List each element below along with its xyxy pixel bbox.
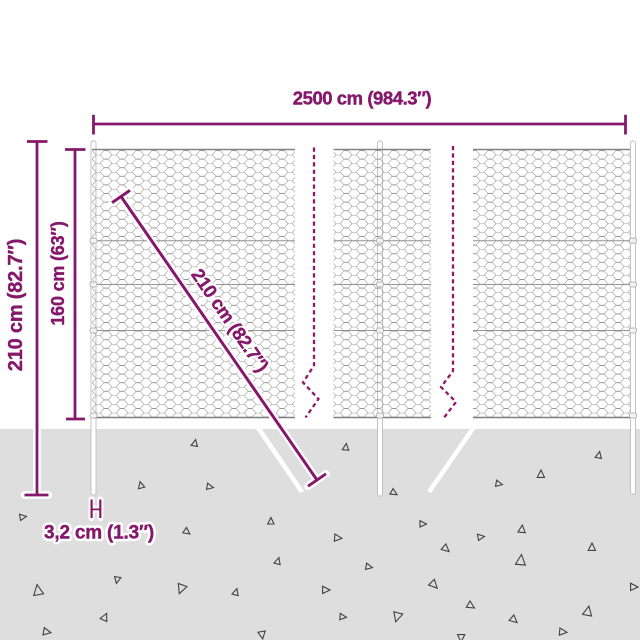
svg-text:3,2 cm (1.3″): 3,2 cm (1.3″) <box>44 523 154 544</box>
svg-text:160 cm (63″): 160 cm (63″) <box>48 221 68 325</box>
svg-text:210 cm (82.7″): 210 cm (82.7″) <box>5 239 27 371</box>
svg-text:2500 cm (984.3″): 2500 cm (984.3″) <box>293 88 432 109</box>
